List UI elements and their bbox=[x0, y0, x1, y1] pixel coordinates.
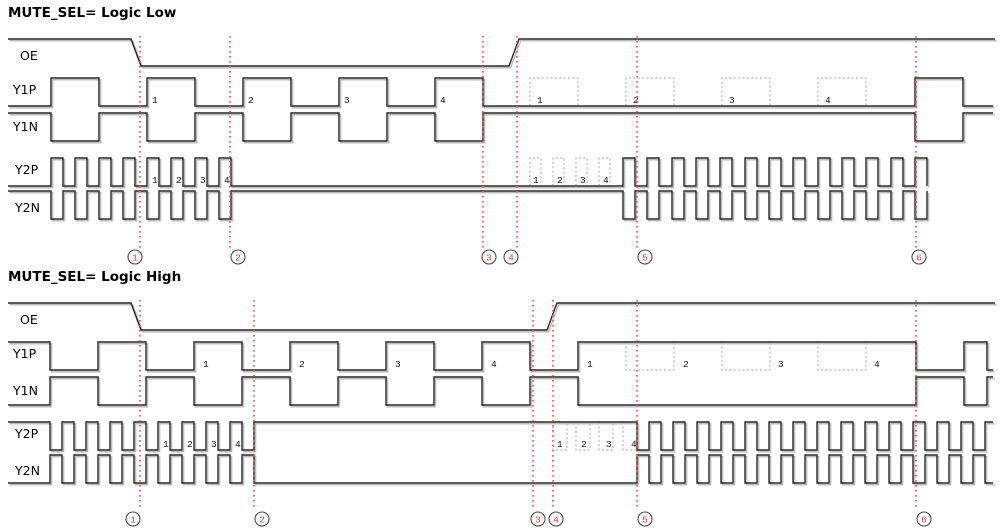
timing-marker-number: 6 bbox=[921, 515, 927, 526]
timing-marker-number: 4 bbox=[508, 253, 514, 264]
timing-diagram-page: 1234123412341234123456123412341234123412… bbox=[0, 0, 1001, 532]
signal-label-y2n: Y2N bbox=[15, 200, 40, 215]
wave-y1n bbox=[8, 113, 993, 141]
signal-label-y1p: Y1P bbox=[13, 346, 36, 361]
wave-y2p bbox=[8, 158, 927, 186]
signal-label-oe: OE bbox=[20, 48, 38, 63]
panel-title-mute-sel-low: MUTE_SEL= Logic Low bbox=[8, 5, 176, 21]
wave-shadow-y1n bbox=[10, 379, 995, 407]
wave-shadow-y1p bbox=[10, 344, 995, 372]
pulse-number: 1 bbox=[557, 439, 563, 450]
timing-marker-number: 1 bbox=[130, 515, 136, 526]
pulse-number: 3 bbox=[211, 439, 217, 450]
signal-label-y2p: Y2P bbox=[15, 426, 38, 441]
panel-1: 1234123412341234123456 bbox=[8, 300, 997, 526]
pulse-number: 3 bbox=[344, 95, 350, 106]
pulse-number: 1 bbox=[152, 95, 158, 106]
signal-label-oe: OE bbox=[20, 312, 38, 327]
pulse-number: 2 bbox=[187, 439, 193, 450]
wave-shadow-oe bbox=[10, 305, 997, 332]
signal-label-y1p: Y1P bbox=[13, 82, 36, 97]
pulse-number: 4 bbox=[874, 359, 880, 370]
muted-pulse-outline-y1p bbox=[818, 342, 866, 370]
pulse-number: 4 bbox=[440, 95, 446, 106]
pulse-number: 1 bbox=[587, 359, 593, 370]
pulse-number: 2 bbox=[683, 359, 689, 370]
timing-marker-number: 4 bbox=[553, 515, 559, 526]
pulse-number: 3 bbox=[729, 95, 735, 106]
signal-label-y2p: Y2P bbox=[15, 162, 38, 177]
wave-oe bbox=[8, 303, 995, 330]
wave-y2n bbox=[8, 455, 993, 483]
panel-title-mute-sel-high: MUTE_SEL= Logic High bbox=[8, 269, 181, 285]
signal-label-y1n: Y1N bbox=[13, 119, 38, 134]
pulse-number: 4 bbox=[224, 175, 230, 186]
pulse-number: 2 bbox=[581, 439, 587, 450]
wave-y1n bbox=[8, 377, 993, 405]
timing-marker-number: 2 bbox=[259, 515, 265, 526]
pulse-number: 1 bbox=[533, 175, 539, 186]
wave-shadow-oe bbox=[10, 41, 997, 68]
wave-y2p bbox=[8, 422, 993, 450]
pulse-number: 2 bbox=[248, 95, 254, 106]
pulse-number: 3 bbox=[580, 175, 586, 186]
pulse-number: 2 bbox=[633, 95, 639, 106]
pulse-number: 3 bbox=[606, 439, 612, 450]
signal-label-y2n: Y2N bbox=[15, 463, 40, 478]
timing-marker-number: 5 bbox=[642, 515, 648, 526]
timing-marker-number: 6 bbox=[916, 253, 922, 264]
panel-0: 1234123412341234123456 bbox=[8, 36, 997, 264]
pulse-number: 3 bbox=[778, 359, 784, 370]
pulse-number: 2 bbox=[176, 175, 182, 186]
wave-oe bbox=[8, 39, 995, 66]
pulse-number: 1 bbox=[152, 175, 158, 186]
timing-marker-number: 2 bbox=[235, 253, 241, 264]
timing-marker-number: 3 bbox=[535, 515, 541, 526]
signal-label-y1n: Y1N bbox=[13, 383, 38, 398]
pulse-number: 3 bbox=[395, 359, 401, 370]
pulse-number: 4 bbox=[603, 175, 609, 186]
timing-marker-number: 5 bbox=[642, 253, 648, 264]
pulse-number: 2 bbox=[299, 359, 305, 370]
muted-pulse-outline-y1p bbox=[722, 342, 770, 370]
timing-marker-number: 1 bbox=[132, 253, 138, 264]
muted-pulse-outline-y1p bbox=[626, 342, 674, 370]
pulse-number: 1 bbox=[203, 359, 209, 370]
wave-y2n bbox=[8, 191, 927, 219]
pulse-number: 4 bbox=[825, 95, 831, 106]
wave-shadow-y1n bbox=[10, 115, 995, 143]
pulse-number: 4 bbox=[491, 359, 497, 370]
pulse-number: 4 bbox=[631, 439, 637, 450]
wave-y1p bbox=[8, 342, 993, 370]
pulse-number: 2 bbox=[557, 175, 563, 186]
pulse-number: 1 bbox=[163, 439, 169, 450]
timing-diagram-canvas: 1234123412341234123456123412341234123412… bbox=[0, 0, 1001, 532]
pulse-number: 1 bbox=[537, 95, 543, 106]
pulse-number: 4 bbox=[235, 439, 241, 450]
pulse-number: 3 bbox=[200, 175, 206, 186]
timing-marker-number: 3 bbox=[486, 253, 492, 264]
